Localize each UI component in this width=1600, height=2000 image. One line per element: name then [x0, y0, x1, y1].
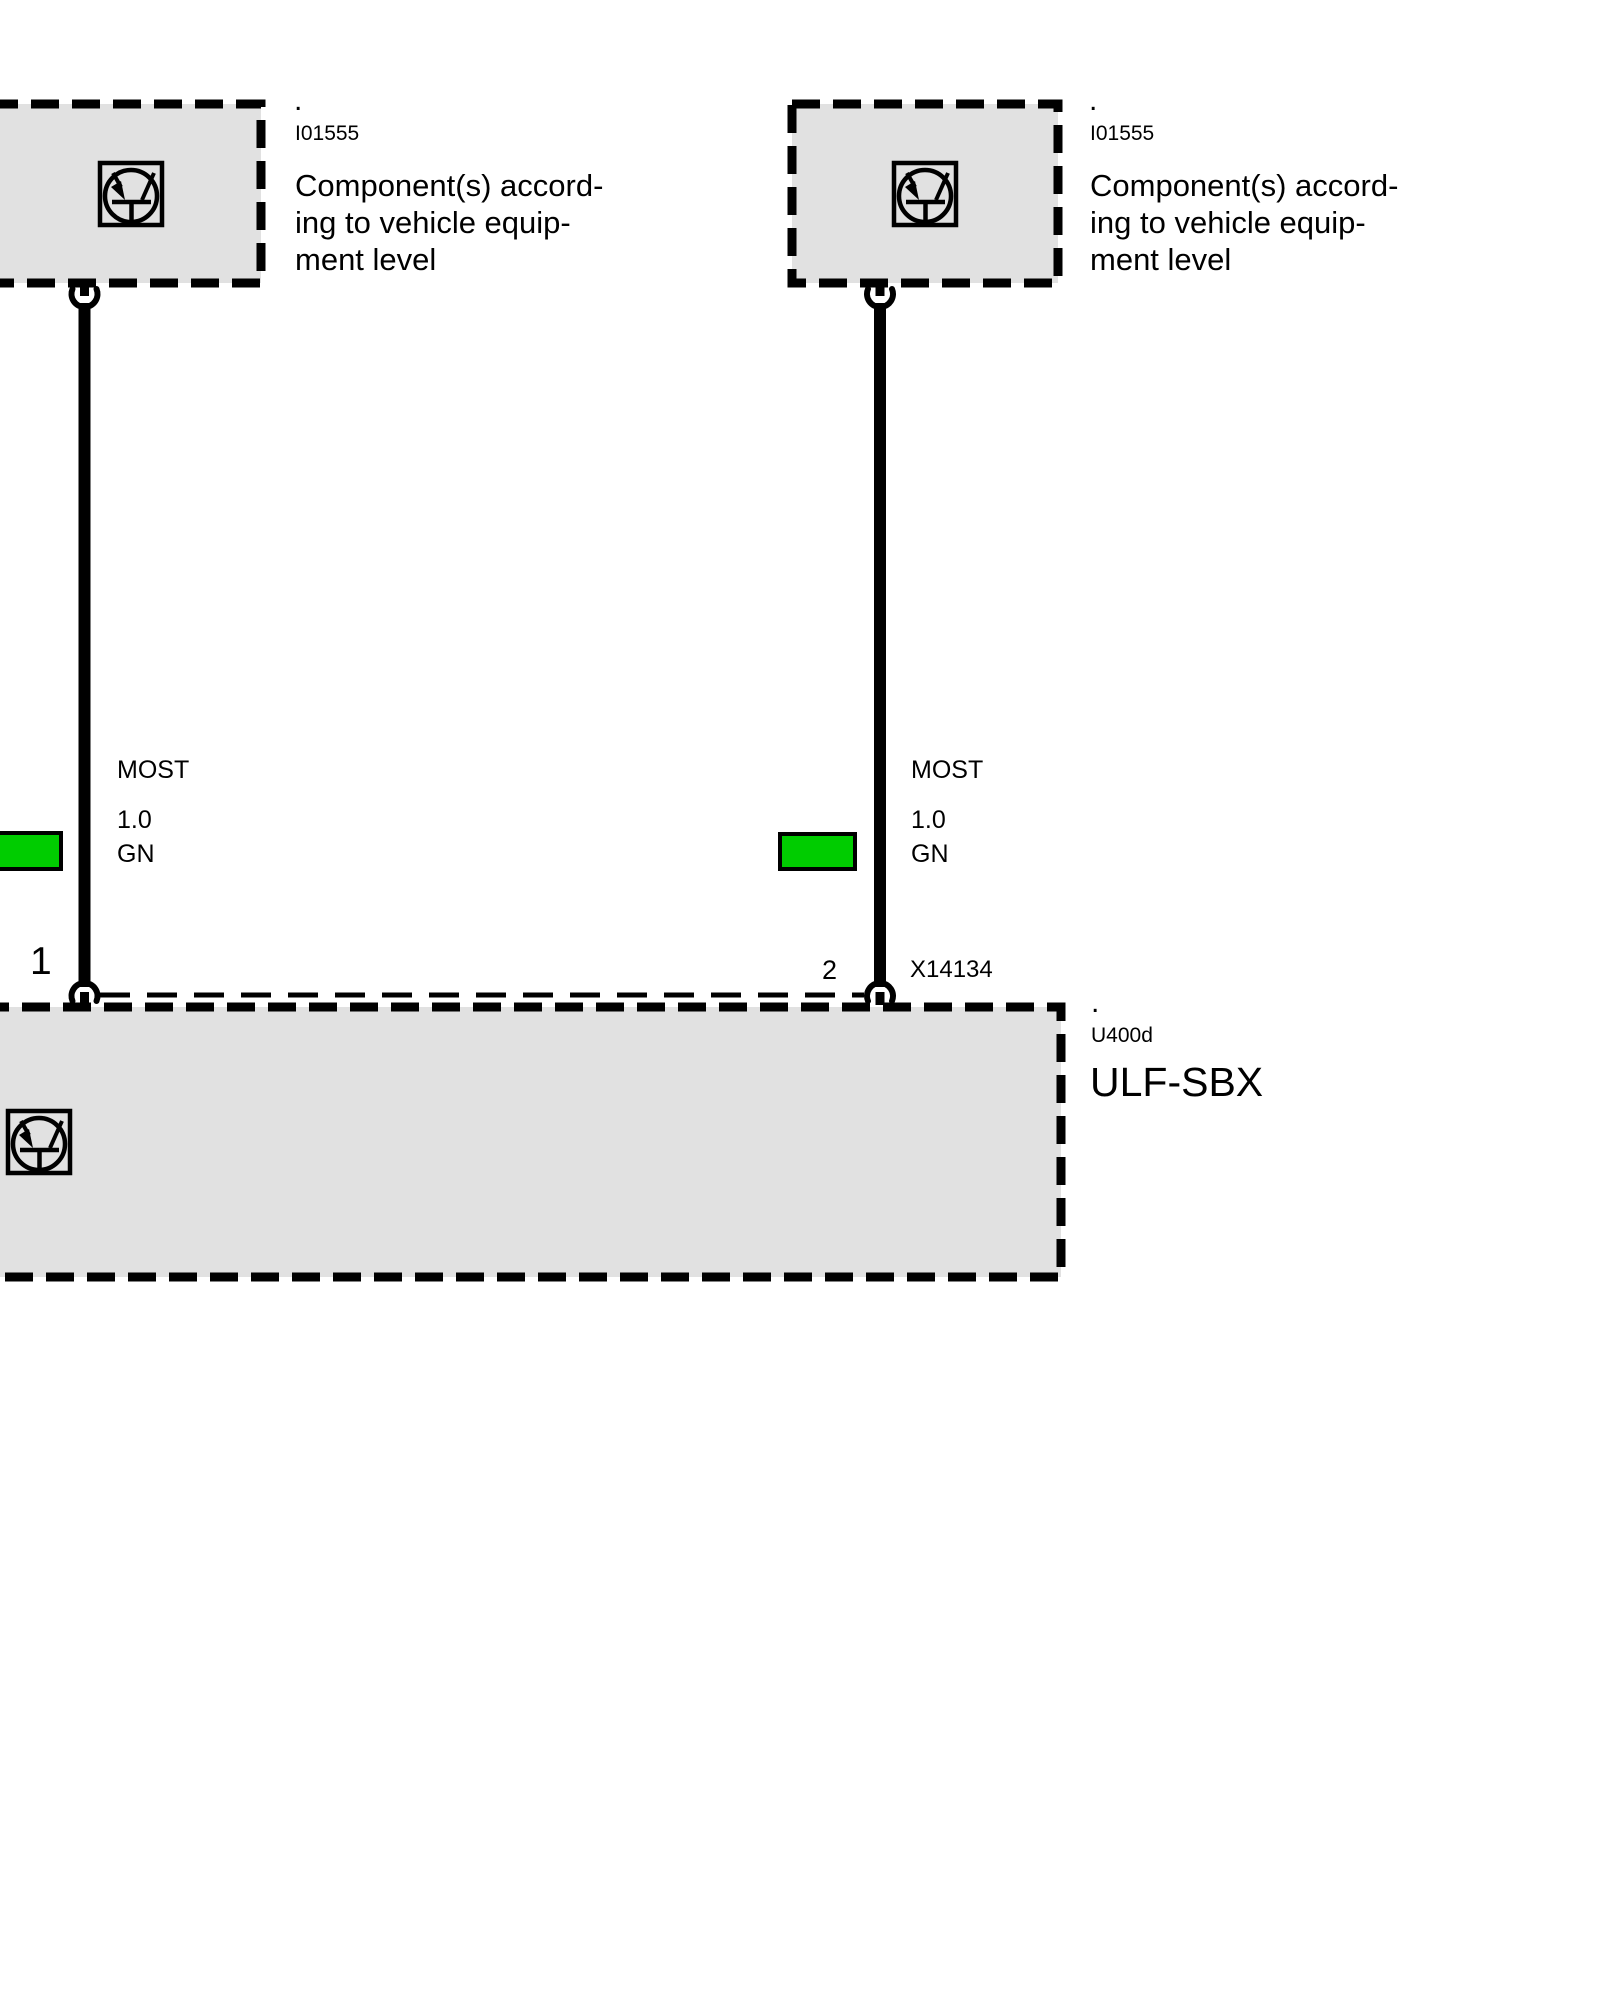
component-label-line: Component(s) accord-: [1090, 167, 1398, 204]
wire-bus-label: MOST: [911, 758, 983, 783]
component-dot: .: [294, 86, 302, 116]
component-code: I01555: [1090, 123, 1154, 144]
wiring-diagram-page: . I01555 Component(s) accord- ing to veh…: [0, 0, 1600, 2000]
component-dot: .: [1089, 86, 1097, 116]
pin-number: 1: [30, 942, 52, 981]
wire-color-label: GN: [117, 842, 155, 867]
component-code: I01555: [295, 123, 359, 144]
wire-size-label: 1.0: [117, 808, 152, 833]
component-label-line: Component(s) accord-: [295, 167, 603, 204]
wire-bus-label: MOST: [117, 758, 189, 783]
component-label-line: ment level: [1090, 241, 1398, 278]
wire-color-swatch-right: [780, 834, 855, 869]
component-label: Component(s) accord- ing to vehicle equi…: [295, 167, 603, 278]
diagram-svg: [0, 0, 1600, 2000]
wire-size-label: 1.0: [911, 808, 946, 833]
component-label-line: ment level: [295, 241, 603, 278]
connector-code: X14134: [910, 958, 993, 982]
wire-color-swatch-left: [0, 833, 61, 869]
unit-name: ULF-SBX: [1090, 1062, 1263, 1103]
pin-number: 2: [822, 957, 837, 984]
component-box-left: [0, 104, 261, 283]
wire-color-label: GN: [911, 842, 949, 867]
component-dot: .: [1091, 988, 1099, 1018]
component-box-right: [792, 104, 1058, 283]
ulf-sbx-box: [0, 1007, 1061, 1277]
pin-tab: [876, 283, 885, 296]
pin-tab: [80, 992, 89, 1005]
component-label-line: ing to vehicle equip-: [1090, 204, 1398, 241]
component-code: U400d: [1091, 1025, 1153, 1046]
component-label: Component(s) accord- ing to vehicle equi…: [1090, 167, 1398, 278]
pin-tab: [80, 283, 89, 296]
component-label-line: ing to vehicle equip-: [295, 204, 603, 241]
pin-tab: [876, 992, 885, 1005]
